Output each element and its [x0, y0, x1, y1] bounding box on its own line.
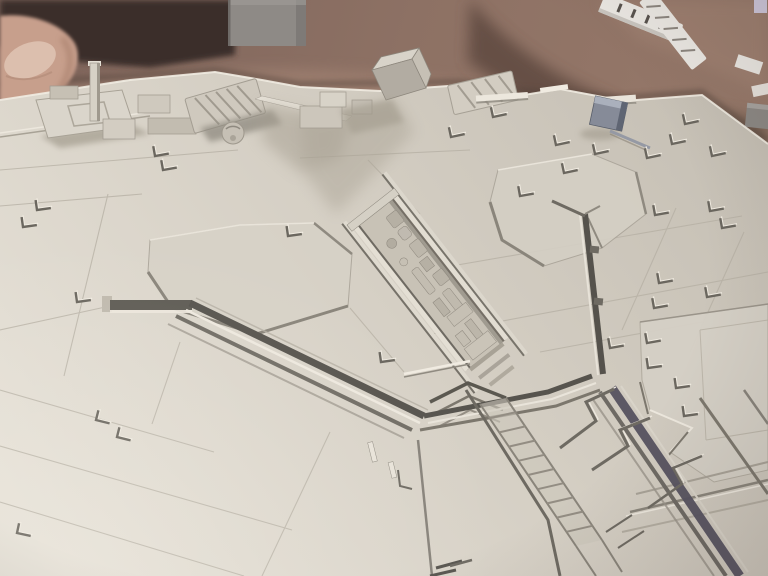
- scene-svg: Photograph of a partially assembled ligh…: [0, 0, 768, 576]
- photo-frame: Photograph of a partially assembled ligh…: [0, 0, 768, 576]
- vignette: [0, 0, 768, 576]
